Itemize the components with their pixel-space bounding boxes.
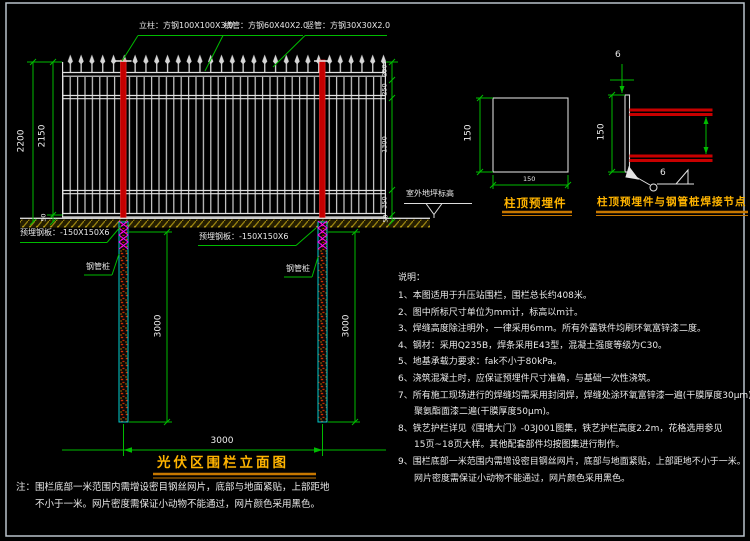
dim-pile-depth-left: 3000	[155, 314, 165, 337]
dim-chain-2: 1300	[382, 136, 389, 153]
fence-elevation	[20, 54, 430, 228]
note-line: 1、本图适用于升压站围栏，围栏总长约408米。	[398, 288, 746, 305]
callout-rail: 横管：方钢60X40X2.0	[224, 22, 308, 31]
fence-pickets	[62, 77, 386, 214]
callout-pile-left: 钢管桩	[86, 263, 110, 272]
dim-chain-1: 250	[382, 83, 389, 95]
callout-post: 立柱：方钢100X100X3.0	[139, 22, 233, 31]
weld-size-bottom: 6	[660, 169, 666, 179]
weld-size-top: 6	[615, 51, 621, 61]
dim-overall-height: 2200	[18, 129, 28, 152]
note-line: 15页~18页大样。其他配套部件均按图集进行制作。	[398, 437, 746, 454]
pile-left	[119, 222, 128, 422]
note-line: 4、钢材：采用Q235B，焊条采用E43型，混凝土强度等级为C30。	[398, 338, 746, 355]
note-line: 网片密度需保证小动物不能通过，网片颜色采用黑色。	[398, 471, 746, 488]
callout-picket: 竖管：方钢30X30X2.0	[306, 22, 390, 31]
fence-spear-row	[62, 54, 386, 73]
note-line: 聚氨酯面漆二遍(干膜厚度50μm)。	[398, 404, 746, 421]
notes-block: 说明： 1、本图适用于升压站围栏，围栏总长约408米。 2、图中所标尺寸单位为m…	[398, 268, 746, 487]
dim-chain-3: 350	[382, 196, 389, 208]
pipe-weld-lines	[630, 109, 713, 163]
dim-chain-4: 50	[383, 214, 390, 222]
detail-weld-dim-height: 150	[598, 123, 608, 140]
callout-ground-level: 室外地坪标高	[406, 190, 454, 199]
dim-pile-depth-right: 3000	[343, 314, 353, 337]
dim-bottom-gap: 50	[41, 213, 48, 221]
steel-pipe-piles	[119, 221, 327, 422]
detail-plate-title: 柱顶预埋件	[504, 197, 567, 210]
note-line: 8、铁艺护栏详见《围墙大门》-03J001图集，铁艺护栏高度2.2m，花格选用参…	[398, 421, 746, 438]
elevation-note-1: 注：围栏底部一米范围内需增设密目钢丝网片，底部与地面紧贴，上部距地	[16, 483, 330, 493]
dim-chain-0: 250	[382, 64, 389, 76]
note-line: 7、所有施工现场进行的焊缝均需采用封闭焊，焊缝处涂环氧富锌漆一遍(干膜厚度30μ…	[398, 388, 746, 405]
dim-panel-height: 2150	[39, 124, 49, 147]
note-line: 6、浇筑混凝土时，应保证预埋件尺寸准确，与基础一次性浇筑。	[398, 371, 746, 388]
dim-pile-spacing: 3000	[207, 437, 237, 447]
ground-elevation-symbol	[404, 204, 472, 219]
callout-plate-mid: 预埋钢板：-150X150X6	[199, 233, 288, 242]
detail-plate-dim-height: 150	[465, 124, 475, 141]
elevation-title: 光伏区围栏立面图	[157, 456, 289, 471]
detail-plate-dim-width: 150	[523, 176, 535, 183]
cad-canvas: 立柱：方钢100X100X3.0 横管：方钢60X40X2.0 竖管：方钢30X…	[0, 0, 750, 541]
notes-heading: 说明：	[398, 268, 746, 288]
callout-plate-left: 预埋钢板：-150X150X6	[20, 229, 109, 238]
note-line: 9、围栏底部一米范围内需增设密目钢丝网片，底部与地面紧贴，上部距地不小于一米。	[398, 454, 746, 471]
ground-hatch	[20, 220, 430, 228]
note-line: 5、地基承载力要求：fak不小于80kPa。	[398, 354, 746, 371]
elevation-note-2: 不小于一米。网片密度需保证小动物不能通过，网片颜色采用黑色。	[35, 500, 320, 510]
note-line: 2、图中所标尺寸单位为mm计，标高以m计。	[398, 305, 746, 322]
note-line: 3、焊缝高度除注明外，一律采用6mm。所有外露铁件均刷环氧富锌漆二度。	[398, 321, 746, 338]
pile-right	[318, 222, 327, 422]
callout-pile-right: 钢管桩	[286, 265, 310, 274]
detail-weld-title: 柱顶预埋件与钢管桩焊接节点	[597, 197, 747, 209]
